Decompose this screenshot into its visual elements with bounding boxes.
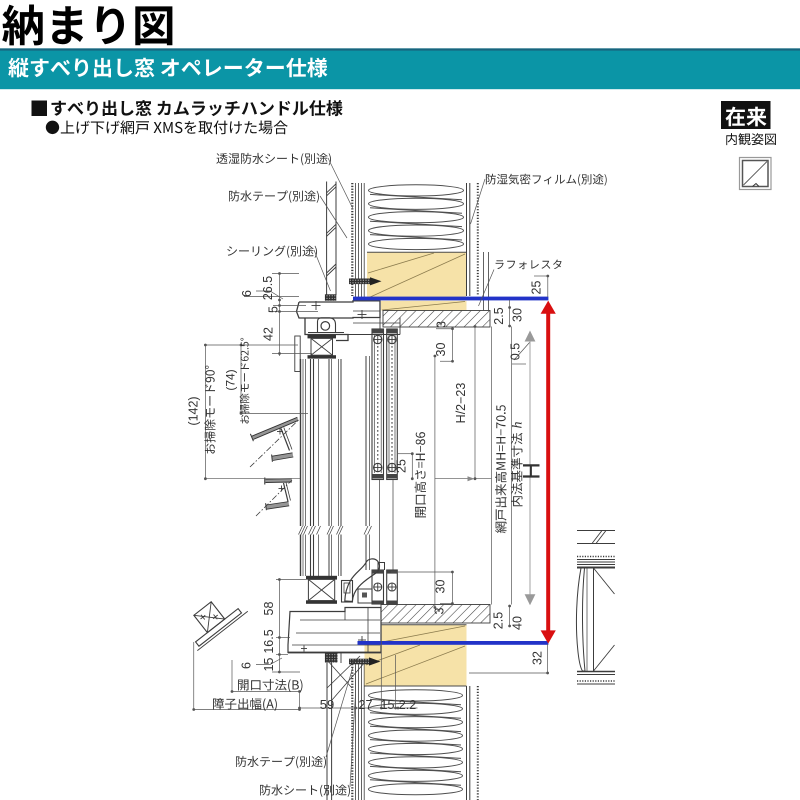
svg-text:30: 30 (511, 308, 525, 322)
svg-text:2.5: 2.5 (492, 307, 506, 324)
svg-text:59: 59 (320, 697, 334, 712)
svg-text:0.5: 0.5 (509, 343, 523, 360)
svg-text:3: 3 (435, 321, 449, 328)
svg-text:5: 5 (267, 306, 281, 313)
svg-text:16.5: 16.5 (262, 629, 276, 653)
svg-text:H/2−23: H/2−23 (454, 383, 468, 424)
svg-text:26.5: 26.5 (261, 276, 275, 300)
svg-text:H: H (519, 462, 546, 479)
svg-text:32: 32 (531, 651, 545, 665)
svg-text:(74): (74) (224, 369, 238, 390)
svg-text:27: 27 (359, 698, 373, 712)
svg-text:25: 25 (530, 281, 544, 295)
svg-text:25: 25 (395, 459, 409, 473)
svg-text:30: 30 (434, 343, 448, 357)
svg-text:2.5: 2.5 (492, 612, 506, 629)
svg-text:42: 42 (262, 327, 276, 341)
svg-text:2.2: 2.2 (399, 698, 416, 712)
svg-text:40: 40 (511, 616, 525, 630)
svg-text:6: 6 (240, 662, 254, 669)
svg-text:3: 3 (433, 607, 447, 614)
svg-text:30: 30 (434, 580, 448, 594)
svg-text:h: h (511, 422, 526, 429)
svg-text:6: 6 (240, 290, 254, 297)
svg-text:15: 15 (262, 658, 276, 672)
svg-text:(142): (142) (187, 396, 201, 425)
svg-text:58: 58 (262, 602, 276, 616)
svg-text:15: 15 (381, 698, 395, 712)
